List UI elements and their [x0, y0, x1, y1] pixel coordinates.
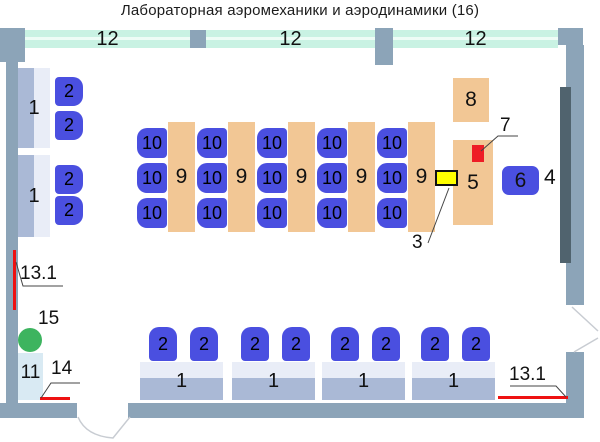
- label-11: 11: [18, 363, 43, 383]
- middle-desk-1-label: 9: [176, 165, 188, 189]
- bottom-desk-1: 1: [140, 362, 223, 400]
- chair: 10: [257, 128, 287, 158]
- middle-desk-4-label: 9: [356, 165, 368, 189]
- middle-desk-3-label: 9: [296, 165, 308, 189]
- middle-desk-5: 9: [408, 122, 435, 232]
- wall-right-lower: [566, 352, 584, 404]
- chair: 2: [282, 327, 310, 361]
- label-13-1-left: 13.1: [20, 264, 57, 284]
- window-1: 12: [25, 30, 190, 48]
- bottom-desk-1-label: 1: [140, 362, 223, 400]
- chair: 2: [462, 327, 490, 361]
- chair: 2: [55, 111, 83, 140]
- chair: 10: [137, 128, 167, 158]
- chair: 2: [55, 77, 83, 106]
- chair: 10: [137, 163, 167, 193]
- bottom-desk-3: 1: [322, 362, 405, 400]
- chair: 10: [377, 198, 407, 228]
- wall-board-item-4: [560, 87, 571, 263]
- label-14: 14: [51, 359, 72, 379]
- marker-item-15: [18, 328, 42, 352]
- leader-14: [41, 383, 80, 398]
- chair: 2: [421, 327, 449, 361]
- chair: 10: [377, 128, 407, 158]
- door-swing-bottom-right: [572, 307, 598, 352]
- window-3-label: 12: [464, 30, 486, 48]
- wall-corner-top-right: [558, 28, 583, 45]
- chair: 10: [197, 163, 227, 193]
- window-2-label: 12: [279, 30, 301, 48]
- middle-desk-3: 9: [288, 122, 315, 232]
- red-line-14: [40, 397, 70, 400]
- middle-desk-1: 9: [168, 122, 195, 232]
- left-desk-2-label: 1: [18, 155, 50, 237]
- chair: 2: [149, 327, 177, 361]
- bottom-desk-2-label: 1: [232, 362, 315, 400]
- chair: 10: [317, 163, 347, 193]
- left-desk-1: 1: [18, 68, 50, 148]
- item-7-label: 7: [500, 116, 511, 136]
- wall-bottom-main-segment: [128, 403, 584, 418]
- chair: 10: [257, 163, 287, 193]
- wall-pillar-2: [375, 28, 393, 65]
- chair: 2: [55, 165, 83, 194]
- wall-left: [6, 55, 18, 405]
- floor-plan: Лабораторная аэромеханики и аэродинамики…: [0, 0, 600, 442]
- wall-bottom-left-segment: [0, 403, 77, 418]
- label-13-1-right: 13.1: [509, 365, 546, 385]
- red-line-right-13-1: [498, 396, 568, 399]
- red-line-left-13-1: [13, 250, 16, 310]
- left-desk-1-label: 1: [18, 68, 50, 148]
- left-desk-2: 1: [18, 155, 50, 237]
- switch-item-3: [435, 170, 458, 186]
- chair: 2: [55, 196, 83, 225]
- chair: 10: [197, 128, 227, 158]
- door-swing-bottom-left: [78, 417, 130, 438]
- middle-desk-4: 9: [348, 122, 375, 232]
- chair: 2: [372, 327, 400, 361]
- middle-desk-2-label: 9: [236, 165, 248, 189]
- label-15: 15: [38, 309, 59, 329]
- chair: 10: [317, 128, 347, 158]
- chair: 10: [377, 163, 407, 193]
- middle-desk-2: 9: [228, 122, 255, 232]
- chair: 10: [257, 198, 287, 228]
- bottom-desk-4: 1: [412, 362, 495, 400]
- item-6-label: 6: [515, 169, 527, 193]
- chair: 10: [137, 198, 167, 228]
- bottom-desk-2: 1: [232, 362, 315, 400]
- chair: 10: [317, 198, 347, 228]
- device-item-7: [472, 145, 484, 162]
- chair: 10: [197, 198, 227, 228]
- bottom-desk-4-label: 1: [412, 362, 495, 400]
- page-title: Лабораторная аэромеханики и аэродинамики…: [0, 2, 600, 19]
- window-2: 12: [206, 30, 375, 48]
- window-1-label: 12: [96, 30, 118, 48]
- item-4-label: 4: [544, 168, 556, 188]
- cabinet-item-8: 8: [453, 78, 489, 122]
- item-5-label: 5: [467, 171, 479, 195]
- wall-pillar-1: [190, 30, 206, 48]
- bottom-desk-3-label: 1: [322, 362, 405, 400]
- seat-item-6: 6: [502, 166, 539, 195]
- middle-desk-5-label: 9: [416, 165, 428, 189]
- chair: 2: [190, 327, 218, 361]
- chair: 2: [331, 327, 359, 361]
- chair: 2: [241, 327, 269, 361]
- item-3-label: 3: [412, 233, 423, 253]
- item-8-label: 8: [465, 88, 477, 112]
- window-3: 12: [393, 30, 558, 48]
